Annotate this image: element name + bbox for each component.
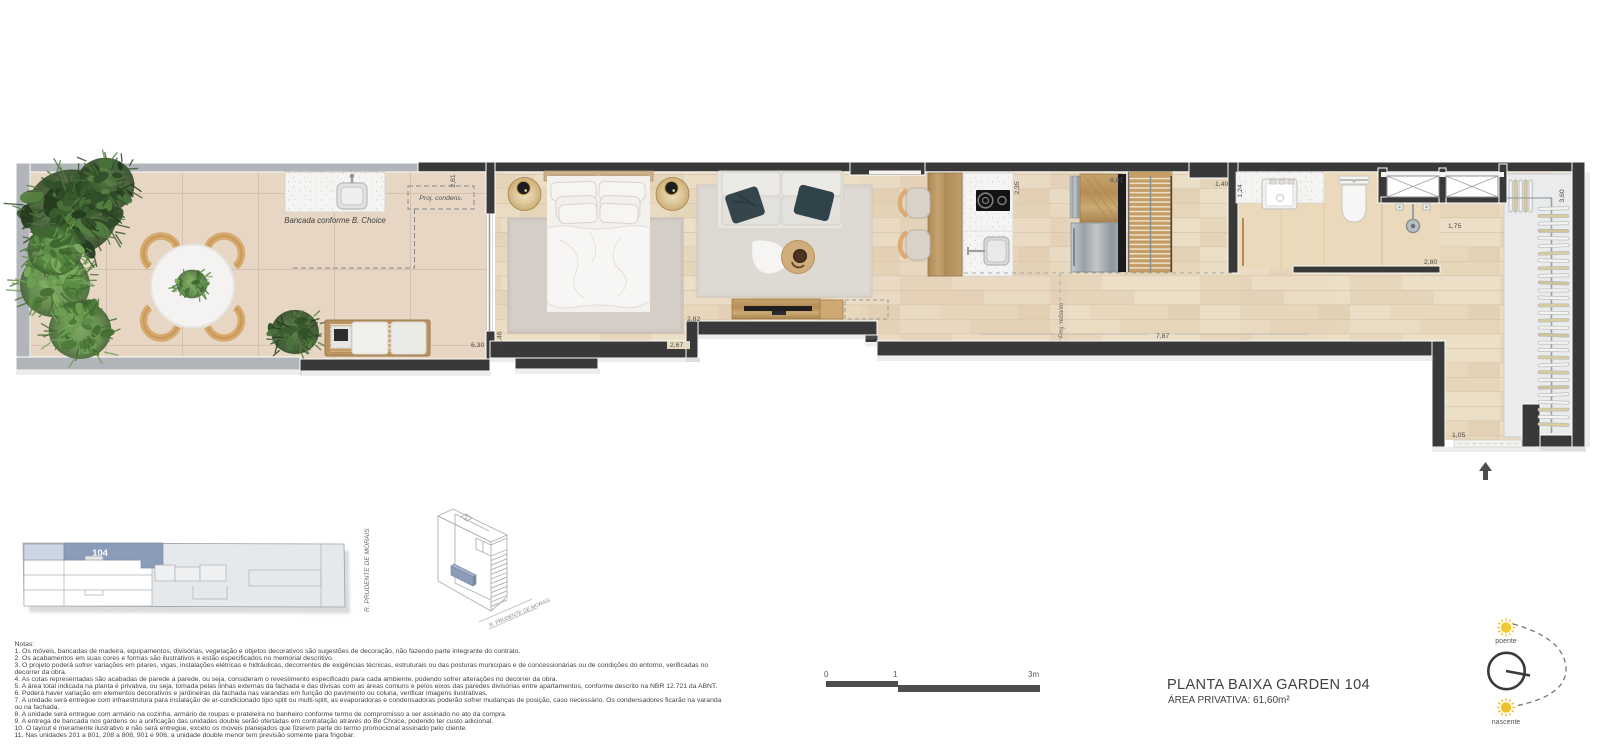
svg-text:nascente: nascente — [1492, 719, 1521, 726]
svg-text:ou na fachada.: ou na fachada. — [15, 704, 60, 711]
svg-text:7,87: 7,87 — [1156, 333, 1169, 340]
svg-text:0: 0 — [824, 670, 829, 679]
svg-text:R. PRUDENTE DE MORAIS: R. PRUDENTE DE MORAIS — [488, 597, 551, 628]
svg-text:8. A unidade será entregue com: 8. A unidade será entregue com armário n… — [15, 711, 507, 718]
svg-text:3,60: 3,60 — [1559, 189, 1566, 202]
svg-text:2,82: 2,82 — [687, 316, 700, 323]
svg-text:2,67: 2,67 — [670, 342, 683, 349]
svg-text:poente: poente — [1495, 638, 1517, 645]
svg-text:1,24: 1,24 — [1237, 184, 1244, 197]
svg-text:104: 104 — [92, 548, 109, 559]
svg-text:2,61: 2,61 — [450, 174, 457, 187]
svg-text:2,46: 2,46 — [497, 331, 504, 344]
svg-text:8,81: 8,81 — [1110, 177, 1123, 184]
svg-text:1,40: 1,40 — [1215, 181, 1228, 188]
svg-text:decorrer da obra.: decorrer da obra. — [15, 669, 67, 676]
svg-text:R. PRUDENTE DE MORAIS: R. PRUDENTE DE MORAIS — [364, 528, 371, 612]
svg-text:1,05: 1,05 — [1452, 432, 1465, 439]
svg-text:1: 1 — [893, 670, 898, 679]
svg-text:9. A entrega de bancada nos ga: 9. A entrega de bancada nos gardens ou a… — [15, 718, 494, 725]
svg-text:Notas:: Notas: — [15, 641, 35, 648]
svg-text:1,75: 1,75 — [1448, 223, 1461, 230]
svg-text:2. Os acabamentos em suas cor: 2. Os acabamentos em suas cores e formas… — [15, 655, 334, 662]
svg-text:Proj. rebaixo: Proj. rebaixo — [1058, 302, 1065, 338]
svg-text:PLANTA BAIXA GARDEN 104: PLANTA BAIXA GARDEN 104 — [1167, 677, 1370, 693]
svg-text:Proj. condens.: Proj. condens. — [419, 195, 463, 202]
svg-text:10. O layout é meramente ilust: 10. O layout é meramente ilustrativo e n… — [15, 725, 468, 732]
svg-text:6,30: 6,30 — [471, 342, 484, 349]
svg-text:1. Os móveis, bancadas de mad: 1. Os móveis, bancadas de madeira, equip… — [15, 648, 521, 655]
svg-text:4. As cotas representadas são: 4. As cotas representadas são acabadas d… — [15, 676, 558, 683]
svg-text:6. Poderá haver variação em el: 6. Poderá haver variação em elementos de… — [15, 690, 488, 697]
svg-text:3. O projeto poderá sofrer va: 3. O projeto poderá sofrer variações em … — [15, 662, 709, 669]
svg-text:ÁREA PRIVATIVA: 61,60m²: ÁREA PRIVATIVA: 61,60m² — [1168, 693, 1290, 706]
svg-text:11. Nas unidades 201 a 801, 20: 11. Nas unidades 201 a 801, 208 a 808, 9… — [15, 732, 355, 739]
svg-text:2,80: 2,80 — [1424, 259, 1437, 266]
svg-text:Bancada conforme B. Choice: Bancada conforme B. Choice — [284, 216, 386, 225]
svg-text:2,35: 2,35 — [1014, 181, 1021, 194]
svg-text:3m: 3m — [1028, 670, 1039, 679]
svg-text:7. A unidade será entregue com: 7. A unidade será entregue com infraestr… — [15, 697, 722, 704]
svg-text:5. A área total indicada na pl: 5. A área total indicada na planta é pri… — [15, 683, 718, 690]
